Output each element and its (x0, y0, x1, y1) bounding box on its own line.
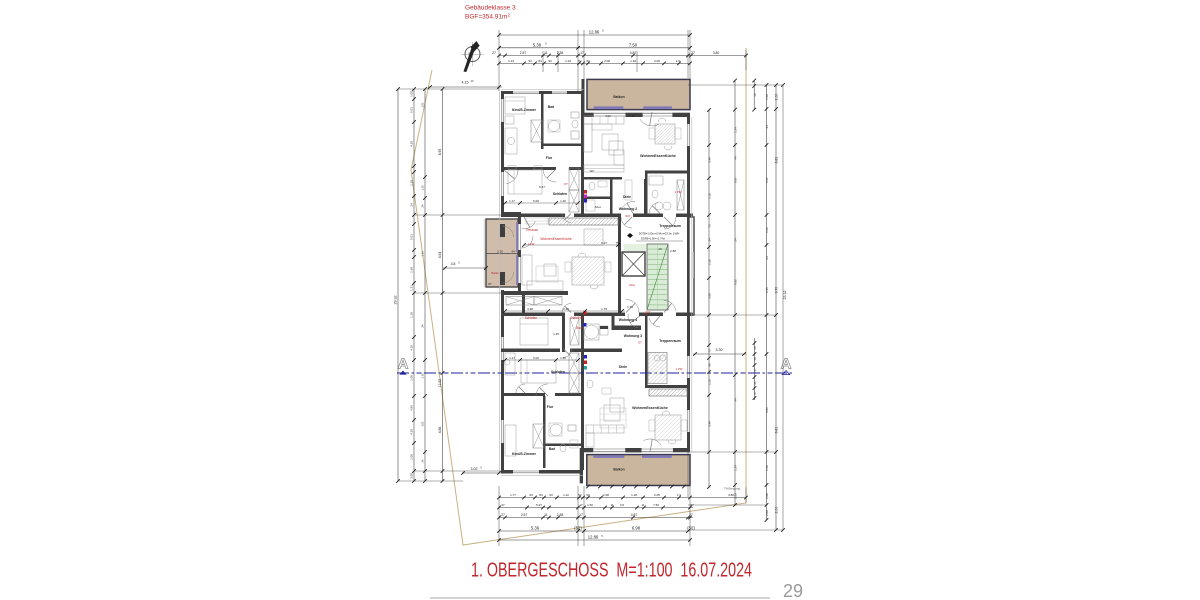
svg-text:1. OBERGESCHOSS M=1:100 16.0: 1. OBERGESCHOSS M=1:100 16.07.2024 (471, 560, 752, 582)
svg-text:DGFB=1.00=+2.74m: DGFB=1.00=+2.74m (641, 237, 665, 241)
svg-text:1.10: 1.10 (409, 180, 413, 186)
svg-text:7%Steigung: 7%Steigung (724, 487, 741, 491)
svg-text:1.77: 1.77 (510, 493, 516, 497)
svg-text:1.12: 1.12 (563, 493, 569, 497)
svg-text:3.48: 3.48 (708, 421, 712, 427)
svg-text:29: 29 (658, 247, 662, 251)
svg-text:1.50: 1.50 (734, 493, 738, 499)
svg-text:1.18: 1.18 (708, 193, 712, 199)
svg-text:Treppenraum: Treppenraum (659, 339, 680, 343)
svg-text:1.17: 1.17 (753, 368, 757, 374)
svg-text:5.00: 5.00 (533, 199, 539, 203)
svg-text:BGF=354.91m2: BGF=354.91m2 (465, 13, 510, 21)
svg-text:Wohnung 2: Wohnung 2 (619, 207, 638, 211)
svg-text:12.82: 12.82 (438, 379, 442, 388)
svg-text:3.03: 3.03 (605, 114, 611, 118)
svg-text:93: 93 (528, 59, 532, 63)
svg-text:2.57: 2.57 (520, 51, 527, 55)
svg-text:DGTB=1.00m+0.94m=23.3m 1/WH: DGTB=1.00m+0.94m=23.3m 1/WH (639, 232, 680, 236)
svg-text:A: A (398, 356, 409, 373)
svg-text:2.38: 2.38 (557, 513, 564, 517)
svg-text:52: 52 (586, 59, 590, 63)
svg-text:5.38: 5.38 (533, 42, 542, 47)
svg-text:1.24: 1.24 (734, 127, 738, 133)
svg-text:84: 84 (538, 59, 542, 63)
svg-text:4.87: 4.87 (631, 513, 638, 517)
svg-text:87: 87 (488, 282, 492, 286)
svg-text:6.81: 6.81 (765, 407, 769, 413)
svg-text:1 PW: 1 PW (528, 242, 535, 246)
svg-text:11: 11 (641, 503, 644, 507)
svg-text:3.88: 3.88 (708, 293, 712, 299)
svg-text:7.50: 7.50 (629, 42, 638, 47)
svg-text:1.51: 1.51 (765, 227, 769, 233)
svg-text:Schlafen: Schlafen (525, 316, 538, 320)
svg-text:11: 11 (544, 513, 548, 517)
svg-text:2.05: 2.05 (654, 493, 660, 497)
svg-text:6.98: 6.98 (632, 526, 641, 531)
svg-text:5.00: 5.00 (533, 356, 539, 360)
svg-text:1.25: 1.25 (553, 332, 559, 336)
svg-text:11: 11 (610, 503, 613, 507)
svg-text:44: 44 (765, 125, 769, 129)
svg-text:7.50: 7.50 (653, 503, 659, 507)
svg-text:Balkon: Balkon (613, 95, 624, 99)
svg-text:6.81: 6.81 (775, 427, 779, 434)
svg-text:8.87: 8.87 (734, 177, 738, 183)
svg-text:3.48: 3.48 (708, 157, 712, 163)
svg-text:3.30: 3.30 (716, 348, 723, 352)
svg-text:Wohnung 4: Wohnung 4 (619, 318, 638, 322)
svg-text:A: A (781, 356, 792, 373)
svg-text:1.79: 1.79 (601, 307, 607, 311)
svg-text:93: 93 (548, 59, 552, 63)
svg-text:6.57: 6.57 (765, 177, 769, 183)
svg-text:73: 73 (708, 349, 712, 353)
svg-text:5.47: 5.47 (539, 185, 545, 189)
svg-text:2.88: 2.88 (670, 249, 676, 253)
svg-text:5.36: 5.36 (531, 526, 540, 531)
svg-text:24: 24 (409, 203, 413, 207)
svg-text:12.86: 12.86 (588, 535, 599, 540)
svg-text:6.07: 6.07 (601, 241, 607, 245)
svg-text:DT: DT (564, 182, 568, 186)
svg-text:Bad: Bad (548, 105, 554, 109)
svg-text:73: 73 (708, 224, 712, 228)
svg-text:Balkon: Balkon (613, 468, 624, 472)
svg-text:4.10: 4.10 (409, 345, 413, 351)
svg-text:2.00: 2.00 (775, 94, 779, 101)
svg-text:2.38: 2.38 (557, 51, 564, 55)
svg-text:1.90: 1.90 (560, 356, 566, 360)
svg-text:27: 27 (689, 513, 693, 517)
svg-text:WohnenEssenKüche: WohnenEssenKüche (640, 154, 676, 158)
svg-text:Flur: Flur (547, 405, 554, 409)
svg-text:Bad: Bad (549, 447, 555, 451)
svg-text:Diele: Diele (619, 365, 627, 369)
svg-text:44: 44 (734, 398, 738, 402)
svg-text:1.10: 1.10 (420, 185, 424, 191)
svg-text:17: 17 (580, 51, 584, 55)
svg-text:2.20: 2.20 (497, 249, 503, 253)
svg-text:(50): (50) (687, 526, 695, 531)
svg-text:24: 24 (708, 238, 712, 242)
svg-text:44: 44 (734, 156, 738, 160)
svg-text:5.37: 5.37 (536, 503, 542, 507)
svg-text:2.00: 2.00 (775, 507, 779, 514)
svg-text:1.9: 1.9 (676, 59, 681, 63)
svg-text:2.57: 2.57 (521, 513, 528, 517)
svg-text:1.9: 1.9 (677, 493, 682, 497)
svg-text:1.60: 1.60 (587, 503, 593, 507)
svg-text:3.0: 3.0 (620, 503, 625, 507)
svg-text:2 PW: 2 PW (675, 190, 682, 194)
svg-text:DT: DT (638, 341, 642, 345)
svg-text:007: 007 (645, 310, 650, 314)
svg-text:63: 63 (549, 493, 553, 497)
svg-text:24: 24 (734, 238, 738, 242)
svg-text:1.24: 1.24 (734, 465, 738, 471)
svg-text:9.45: 9.45 (765, 287, 769, 293)
svg-text:1.23: 1.23 (565, 59, 571, 63)
svg-text:Abst.: Abst. (595, 205, 602, 209)
svg-text:Diele: Diele (623, 195, 631, 199)
svg-text:Wohnung 3: Wohnung 3 (624, 334, 643, 338)
svg-text:52: 52 (578, 59, 582, 63)
svg-text:2.08: 2.08 (604, 59, 610, 63)
svg-text:Treppenraum: Treppenraum (659, 224, 680, 228)
svg-text:1.00: 1.00 (409, 91, 413, 97)
svg-text:1.00: 1.00 (409, 375, 413, 381)
svg-text:3.98: 3.98 (527, 307, 533, 311)
svg-text:4.10: 4.10 (409, 429, 413, 435)
svg-text:4.15: 4.15 (462, 81, 469, 85)
svg-text:2.05: 2.05 (654, 59, 660, 63)
svg-text:1.10: 1.10 (629, 114, 635, 118)
svg-text:3.8: 3.8 (451, 262, 456, 266)
svg-text:Abst: Abst (629, 283, 635, 287)
svg-text:52: 52 (586, 493, 590, 497)
svg-text:Flur: Flur (546, 156, 553, 160)
svg-text:1.10: 1.10 (420, 373, 424, 379)
svg-text:1.17: 1.17 (509, 199, 515, 203)
svg-text:2.00: 2.00 (765, 493, 769, 499)
svg-text:27: 27 (501, 503, 505, 507)
svg-text:17: 17 (579, 503, 583, 507)
svg-text:WohnenEssenKüche: WohnenEssenKüche (540, 237, 572, 241)
svg-text:9.70: 9.70 (775, 287, 779, 294)
svg-text:1.10: 1.10 (420, 251, 424, 257)
svg-text:12.86: 12.86 (589, 30, 600, 35)
svg-text:3.00: 3.00 (409, 473, 413, 479)
svg-text:Gebäudeklasse 3: Gebäudeklasse 3 (465, 5, 516, 12)
svg-text:1.13: 1.13 (508, 59, 514, 63)
svg-text:8.82: 8.82 (734, 279, 738, 285)
svg-text:4.54: 4.54 (438, 252, 442, 259)
svg-text:WC: WC (590, 169, 595, 173)
svg-text:DielePlur: DielePlur (571, 316, 585, 320)
svg-text:44: 44 (511, 249, 515, 253)
svg-text:3.02: 3.02 (471, 467, 478, 471)
svg-text:11: 11 (544, 51, 548, 55)
svg-text:2.10: 2.10 (708, 259, 712, 265)
svg-text:1.17: 1.17 (509, 356, 515, 360)
svg-text:3.80: 3.80 (713, 51, 720, 55)
svg-text:1.30: 1.30 (560, 199, 566, 203)
svg-text:1.18: 1.18 (631, 493, 637, 497)
svg-text:27: 27 (501, 513, 505, 517)
svg-text:1.00: 1.00 (409, 454, 413, 460)
svg-text:29: 29 (783, 581, 803, 600)
svg-text:007: 007 (625, 214, 630, 218)
svg-text:1.10: 1.10 (409, 312, 413, 318)
svg-text:1 PW: 1 PW (676, 367, 683, 371)
svg-text:5.01: 5.01 (409, 107, 413, 113)
svg-text:1.10: 1.10 (708, 379, 712, 385)
svg-text:1.18: 1.18 (630, 59, 636, 63)
svg-text:(52): (52) (574, 526, 582, 531)
svg-text:Kind/S.Zimmer: Kind/S.Zimmer (512, 452, 537, 456)
svg-text:23.32: 23.32 (783, 291, 787, 300)
svg-text:4.87: 4.87 (630, 51, 637, 55)
svg-text:84: 84 (539, 493, 543, 497)
svg-text:4.86: 4.86 (438, 427, 442, 434)
svg-text:1.79: 1.79 (627, 305, 633, 309)
svg-text:4.86: 4.86 (409, 405, 413, 411)
svg-text:Kind/S.Zimmer: Kind/S.Zimmer (512, 108, 537, 112)
svg-text:5.01: 5.01 (409, 234, 413, 240)
svg-text:1.01: 1.01 (420, 421, 424, 427)
svg-text:1.38: 1.38 (409, 267, 413, 273)
svg-text:27: 27 (691, 51, 695, 55)
svg-text:17: 17 (579, 513, 583, 517)
svg-text:24: 24 (765, 256, 769, 260)
svg-text:6.81: 6.81 (775, 157, 779, 164)
svg-text:Bad: Bad (576, 326, 582, 330)
svg-text:2.00: 2.00 (765, 510, 769, 516)
svg-text:27: 27 (492, 51, 496, 55)
svg-text:Terrasse: Terrasse (526, 228, 538, 232)
svg-text:1.31: 1.31 (409, 285, 413, 291)
svg-text:Schlafen: Schlafen (553, 192, 567, 196)
svg-text:98: 98 (708, 363, 712, 367)
svg-text:52: 52 (578, 493, 582, 497)
svg-text:1.01: 1.01 (420, 102, 424, 108)
svg-text:2.40: 2.40 (563, 307, 569, 311)
svg-text:29.32: 29.32 (393, 296, 397, 305)
svg-text:2.08: 2.08 (603, 493, 609, 497)
svg-text:Schlafen: Schlafen (551, 370, 565, 374)
svg-text:1.50: 1.50 (765, 94, 769, 100)
svg-text:8.95: 8.95 (438, 149, 442, 156)
svg-text:1.50: 1.50 (765, 465, 769, 471)
svg-text:WohnenEssenKüche: WohnenEssenKüche (632, 406, 668, 410)
svg-text:63: 63 (529, 493, 533, 497)
svg-text:4.10: 4.10 (409, 141, 413, 147)
